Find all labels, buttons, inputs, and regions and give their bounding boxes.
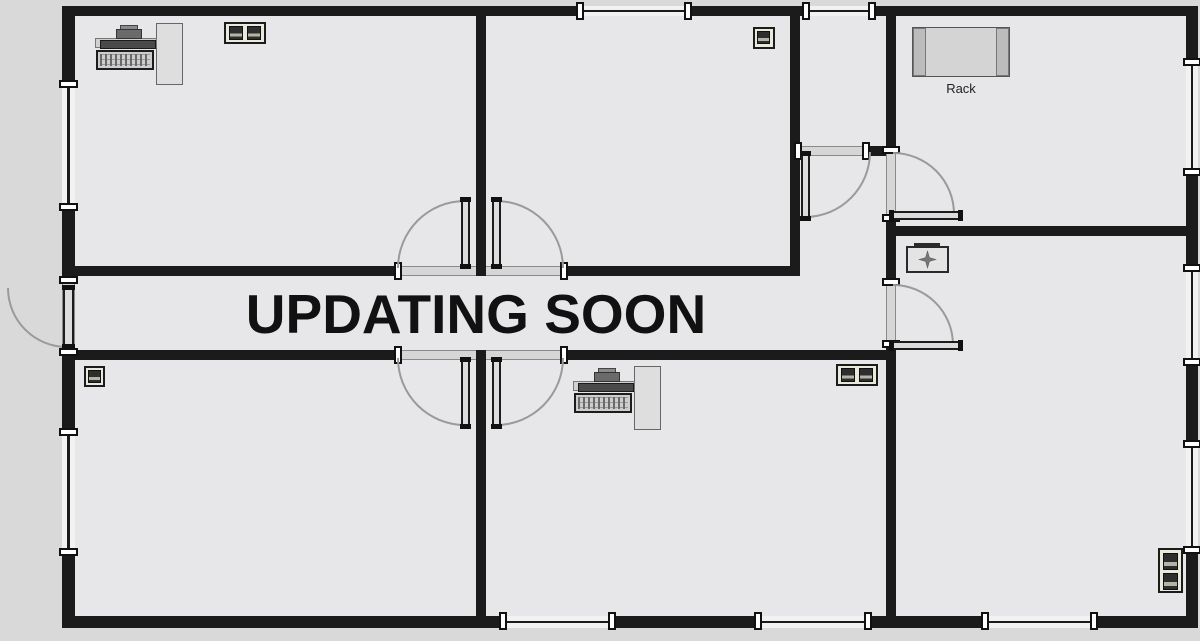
cross-star-icon: [918, 250, 937, 269]
wall-closet-left: [790, 16, 800, 266]
rack-rail: [913, 28, 926, 76]
window-post: [1183, 264, 1200, 272]
window-post: [802, 2, 810, 20]
window: [1186, 64, 1198, 170]
door-leaf: [461, 358, 470, 428]
window: [985, 616, 1094, 628]
network-port: [247, 26, 261, 40]
rack-label: Rack: [912, 81, 1010, 97]
monitor-stand: [116, 29, 142, 39]
banner-text: UPDATING SOON: [62, 287, 890, 341]
window-post: [684, 2, 692, 20]
desk: [156, 23, 183, 85]
wall-corridor-bottom: [62, 350, 896, 360]
window: [503, 616, 612, 628]
desk: [634, 366, 661, 430]
door-leaf: [801, 152, 810, 220]
window-post: [1183, 58, 1200, 66]
dual-network-port-icon: [836, 364, 878, 386]
window: [806, 6, 872, 16]
dual-network-port-icon: [224, 22, 266, 44]
window: [62, 86, 75, 205]
window: [1186, 448, 1198, 548]
network-port-icon: [753, 27, 775, 49]
window-post: [864, 612, 872, 630]
door-leaf: [890, 341, 962, 350]
network-port: [859, 368, 873, 382]
rack-rail: [996, 28, 1009, 76]
floor-plan: Rack UPDATING SOON: [0, 0, 1200, 641]
monitor-stand: [594, 372, 620, 382]
door-post: [59, 276, 78, 284]
double-outlet-icon: [1158, 548, 1183, 593]
window-post: [1183, 358, 1200, 366]
window-post: [1090, 612, 1098, 630]
window: [62, 434, 75, 550]
window-post: [59, 80, 78, 88]
network-port: [841, 368, 855, 382]
outlet-port: [1163, 553, 1178, 570]
keyboard-icon: [574, 393, 632, 413]
door-post: [59, 348, 78, 356]
network-port: [757, 31, 770, 44]
window-post: [1183, 440, 1200, 448]
window-post: [754, 612, 762, 630]
wall-divider-top: [476, 16, 486, 276]
door-leaf: [461, 198, 470, 268]
window-post: [59, 203, 78, 211]
window-post: [59, 428, 78, 436]
window: [1186, 272, 1198, 360]
workstation-icon: [93, 22, 185, 88]
window-post: [59, 548, 78, 556]
door-leaf: [890, 211, 962, 220]
wall-rackroom-bottom: [886, 226, 1198, 236]
window: [758, 616, 868, 628]
network-port-icon: [84, 366, 105, 387]
window-post: [868, 2, 876, 20]
window-post: [981, 612, 989, 630]
workstation-icon: [571, 365, 663, 431]
network-port: [229, 26, 243, 40]
window: [580, 6, 688, 16]
door-leaf: [492, 198, 501, 268]
rack-icon: [912, 27, 1010, 77]
keyboard-icon: [96, 50, 154, 70]
door-leaf: [492, 358, 501, 428]
window-post: [608, 612, 616, 630]
network-port: [88, 370, 101, 383]
outlet-port: [1163, 573, 1178, 590]
window-post: [499, 612, 507, 630]
door-swing-arc: [7, 288, 67, 348]
monitor-icon: [578, 383, 634, 392]
window-post: [576, 2, 584, 20]
first-aid-box-icon: [906, 241, 949, 273]
window-post: [1183, 168, 1200, 176]
wall-divider-bottom: [476, 360, 486, 616]
monitor-icon: [100, 40, 156, 49]
window-post: [1183, 546, 1200, 554]
